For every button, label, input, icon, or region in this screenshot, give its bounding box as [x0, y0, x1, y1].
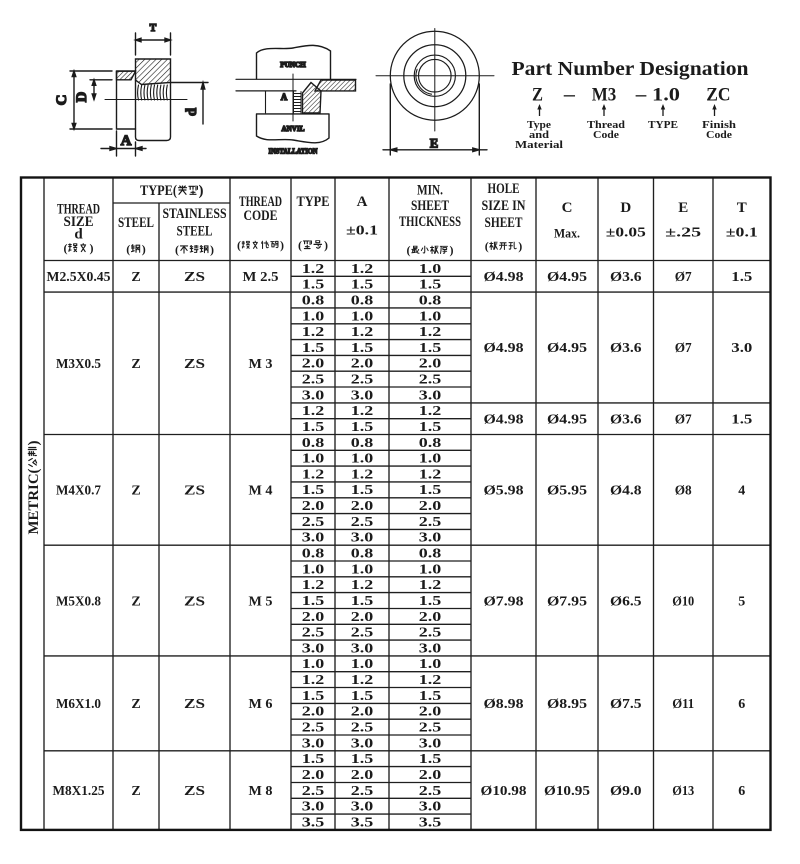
svg-text:2.0: 2.0 [302, 609, 325, 624]
svg-text:6: 6 [738, 784, 745, 799]
svg-text:1.5: 1.5 [419, 688, 442, 703]
svg-text:(: ( [237, 238, 241, 252]
svg-text:2.5: 2.5 [302, 783, 325, 798]
svg-text:A: A [357, 194, 368, 210]
svg-text:1.0: 1.0 [351, 561, 374, 576]
svg-text:ANVIL: ANVIL [282, 125, 305, 133]
svg-text:Ø4.98: Ø4.98 [484, 270, 524, 285]
svg-text:0.8: 0.8 [351, 546, 374, 561]
svg-text:Ø7.98: Ø7.98 [484, 594, 524, 609]
svg-text:1.5: 1.5 [302, 751, 325, 766]
svg-text:D: D [620, 200, 631, 216]
svg-text:METRIC(: METRIC( [26, 469, 42, 535]
svg-text:Ø8: Ø8 [675, 484, 692, 499]
svg-text:1.5: 1.5 [419, 482, 442, 497]
svg-text:ZC: ZC [706, 85, 730, 106]
svg-text:3.0: 3.0 [302, 640, 325, 655]
svg-text:3.0: 3.0 [419, 799, 442, 814]
svg-text:Z: Z [131, 270, 140, 285]
svg-text:Ø10.95: Ø10.95 [544, 784, 590, 799]
svg-text:2.5: 2.5 [302, 372, 325, 387]
svg-text:±.25: ±.25 [665, 225, 701, 240]
svg-text:1.5: 1.5 [351, 688, 374, 703]
svg-text:1.5: 1.5 [419, 593, 442, 608]
svg-text:1.2: 1.2 [351, 324, 374, 339]
svg-text:2.5: 2.5 [351, 514, 374, 529]
svg-text:Ø4.95: Ø4.95 [547, 412, 587, 427]
svg-text:SHEET: SHEET [485, 215, 523, 231]
svg-text:SIZE IN: SIZE IN [482, 198, 526, 214]
svg-text:2.0: 2.0 [302, 767, 325, 782]
svg-text:1.2: 1.2 [351, 466, 374, 481]
svg-text:1.5: 1.5 [302, 482, 325, 497]
svg-text:Z: Z [131, 697, 140, 712]
svg-text:1.5: 1.5 [351, 482, 374, 497]
svg-text:TYPE: TYPE [648, 120, 678, 131]
svg-text:2.0: 2.0 [419, 498, 442, 513]
svg-text:3.5: 3.5 [419, 814, 442, 829]
svg-text:TYPE(: TYPE( [140, 183, 177, 199]
svg-text:d: d [184, 108, 200, 116]
svg-text:0.8: 0.8 [419, 435, 442, 450]
svg-text:1.2: 1.2 [302, 466, 325, 481]
svg-text:Ø10: Ø10 [672, 594, 694, 609]
svg-text:1.5: 1.5 [302, 340, 325, 355]
svg-text:1.2: 1.2 [302, 403, 325, 418]
svg-text:2.5: 2.5 [351, 783, 374, 798]
svg-text:3.0: 3.0 [302, 387, 325, 402]
svg-text:0.8: 0.8 [351, 435, 374, 450]
svg-text:ZS: ZS [184, 357, 205, 372]
svg-text:1.5: 1.5 [419, 277, 442, 292]
svg-text:M3: M3 [592, 85, 617, 106]
svg-text:Ø4.8: Ø4.8 [610, 484, 642, 499]
svg-text:Ø4.95: Ø4.95 [547, 341, 587, 356]
svg-text:(: ( [298, 238, 302, 252]
svg-text:0.8: 0.8 [302, 435, 325, 450]
svg-text:5: 5 [738, 594, 745, 609]
svg-text:2.5: 2.5 [419, 625, 442, 640]
svg-text:ZS: ZS [184, 784, 205, 799]
svg-text:): ) [26, 441, 42, 446]
svg-text:M2.5X0.45: M2.5X0.45 [47, 270, 111, 285]
svg-text:0.8: 0.8 [419, 546, 442, 561]
svg-text:3.0: 3.0 [731, 341, 752, 356]
svg-text:1.0: 1.0 [302, 308, 325, 323]
svg-text:2.5: 2.5 [302, 514, 325, 529]
svg-text:0.8: 0.8 [302, 546, 325, 561]
svg-text:1.0: 1.0 [419, 308, 442, 323]
svg-text:±0.05: ±0.05 [606, 225, 646, 240]
svg-text:Ø7: Ø7 [675, 412, 692, 427]
svg-text:1.5: 1.5 [419, 751, 442, 766]
svg-text:(: ( [126, 242, 130, 256]
svg-text:): ) [450, 243, 454, 257]
svg-text:1.0: 1.0 [419, 261, 442, 276]
svg-text:3.0: 3.0 [419, 640, 442, 655]
svg-text:1.5: 1.5 [731, 412, 752, 427]
svg-text:3.5: 3.5 [302, 814, 325, 829]
svg-text:Z: Z [131, 484, 140, 499]
svg-text:2.5: 2.5 [302, 625, 325, 640]
svg-text:Max.: Max. [554, 226, 580, 241]
svg-text:1.2: 1.2 [351, 577, 374, 592]
svg-text:): ) [280, 238, 284, 252]
svg-text:2.0: 2.0 [419, 704, 442, 719]
svg-text:1.0: 1.0 [351, 656, 374, 671]
svg-text:2.5: 2.5 [419, 720, 442, 735]
svg-text:Z: Z [532, 85, 543, 106]
svg-text:3.0: 3.0 [419, 530, 442, 545]
svg-text:Ø8.98: Ø8.98 [484, 697, 524, 712]
svg-text:1.2: 1.2 [351, 672, 374, 687]
svg-text:1.5: 1.5 [351, 419, 374, 434]
svg-text:1.0: 1.0 [351, 308, 374, 323]
svg-text:2.5: 2.5 [419, 783, 442, 798]
svg-text:D: D [74, 92, 90, 102]
svg-text:PUNCH: PUNCH [280, 61, 306, 69]
svg-text:1.2: 1.2 [419, 466, 442, 481]
svg-text:INSTALLATION: INSTALLATION [269, 147, 319, 156]
svg-text:1.5: 1.5 [302, 277, 325, 292]
svg-text:E: E [430, 137, 438, 151]
svg-text:C: C [562, 200, 573, 216]
svg-text:2.5: 2.5 [419, 514, 442, 529]
svg-text:2.0: 2.0 [351, 767, 374, 782]
svg-text:2.5: 2.5 [351, 372, 374, 387]
svg-text:1.0: 1.0 [419, 451, 442, 466]
svg-text:ZS: ZS [184, 594, 205, 609]
svg-text:–: – [635, 85, 647, 106]
svg-text:2.0: 2.0 [302, 356, 325, 371]
svg-text:1.5: 1.5 [419, 419, 442, 434]
svg-text:): ) [210, 243, 214, 257]
svg-text:1.0: 1.0 [419, 656, 442, 671]
svg-text:M8X1.25: M8X1.25 [53, 784, 105, 799]
svg-text:Ø9.0: Ø9.0 [610, 784, 642, 799]
svg-text:Z: Z [131, 357, 140, 372]
svg-text:3.0: 3.0 [351, 530, 374, 545]
svg-text:(: ( [485, 239, 489, 253]
svg-text:STEEL: STEEL [118, 215, 154, 231]
svg-text:2.5: 2.5 [419, 372, 442, 387]
svg-text:Ø6.5: Ø6.5 [610, 594, 642, 609]
svg-text:1.5: 1.5 [351, 751, 374, 766]
svg-text:CODE: CODE [244, 208, 278, 224]
svg-text:1.0: 1.0 [351, 451, 374, 466]
svg-text:ZS: ZS [184, 697, 205, 712]
svg-text:4: 4 [738, 484, 745, 499]
svg-text:1.2: 1.2 [302, 324, 325, 339]
svg-text:MIN.: MIN. [417, 183, 443, 199]
svg-text:3.0: 3.0 [351, 387, 374, 402]
svg-text:HOLE: HOLE [488, 181, 520, 197]
svg-text:C: C [54, 95, 70, 106]
svg-text:M6X1.0: M6X1.0 [56, 697, 101, 712]
svg-text:(: ( [64, 241, 68, 255]
svg-text:SHEET: SHEET [411, 198, 449, 214]
svg-text:1.0: 1.0 [302, 656, 325, 671]
svg-text:1.5: 1.5 [419, 340, 442, 355]
svg-text:Ø5.95: Ø5.95 [547, 484, 587, 499]
svg-text:Ø7: Ø7 [675, 270, 692, 285]
svg-text:1.5: 1.5 [302, 419, 325, 434]
svg-text:Ø7: Ø7 [675, 341, 692, 356]
svg-text:2.0: 2.0 [302, 704, 325, 719]
svg-text:M 4: M 4 [249, 484, 273, 499]
svg-text:Ø3.6: Ø3.6 [610, 412, 642, 427]
svg-text:3.0: 3.0 [351, 735, 374, 750]
svg-text:1.2: 1.2 [419, 324, 442, 339]
svg-text:Ø7.5: Ø7.5 [610, 697, 642, 712]
svg-text:): ) [324, 238, 328, 252]
svg-text:1.5: 1.5 [351, 340, 374, 355]
svg-text:2.0: 2.0 [419, 609, 442, 624]
svg-text:M 2.5: M 2.5 [243, 270, 279, 285]
svg-text:Ø5.98: Ø5.98 [484, 484, 524, 499]
svg-text:STAINLESS: STAINLESS [163, 206, 227, 222]
svg-text:±0.1: ±0.1 [346, 223, 378, 238]
svg-text:1.2: 1.2 [419, 403, 442, 418]
svg-text:Material: Material [515, 140, 563, 151]
svg-text:1.0: 1.0 [302, 561, 325, 576]
svg-text:1.2: 1.2 [351, 403, 374, 418]
svg-text:2.0: 2.0 [419, 767, 442, 782]
svg-text:Code: Code [593, 130, 619, 141]
svg-text:0.8: 0.8 [419, 292, 442, 307]
svg-text:1.5: 1.5 [302, 593, 325, 608]
svg-text:1.2: 1.2 [302, 672, 325, 687]
svg-text:1.5: 1.5 [302, 688, 325, 703]
svg-text:2.0: 2.0 [351, 498, 374, 513]
svg-text:M 5: M 5 [249, 594, 273, 609]
svg-text:1.5: 1.5 [351, 277, 374, 292]
svg-text:3.0: 3.0 [302, 530, 325, 545]
svg-text:Ø4.98: Ø4.98 [484, 341, 524, 356]
svg-text:M 6: M 6 [249, 697, 273, 712]
svg-text:2.5: 2.5 [302, 720, 325, 735]
svg-text:): ) [90, 241, 94, 255]
svg-text:Ø8.95: Ø8.95 [547, 697, 587, 712]
svg-text:1.2: 1.2 [419, 672, 442, 687]
svg-text:1.5: 1.5 [351, 593, 374, 608]
svg-text:±0.1: ±0.1 [726, 225, 758, 240]
svg-text:Ø4.98: Ø4.98 [484, 412, 524, 427]
svg-text:2.0: 2.0 [419, 356, 442, 371]
svg-text:M 3: M 3 [249, 357, 273, 372]
svg-text:M4X0.7: M4X0.7 [56, 484, 101, 499]
svg-text:3.0: 3.0 [419, 387, 442, 402]
svg-text:Ø10.98: Ø10.98 [481, 784, 527, 799]
svg-text:1.2: 1.2 [302, 577, 325, 592]
svg-text:Ø11: Ø11 [672, 697, 694, 712]
svg-text:2.5: 2.5 [351, 625, 374, 640]
svg-text:(: ( [175, 243, 179, 257]
svg-text:1.0: 1.0 [419, 561, 442, 576]
svg-text:Ø3.6: Ø3.6 [610, 341, 642, 356]
svg-text:d: d [74, 227, 83, 243]
svg-text:2.0: 2.0 [351, 609, 374, 624]
svg-text:T: T [150, 23, 157, 34]
svg-text:0.8: 0.8 [351, 292, 374, 307]
svg-text:E: E [678, 200, 688, 216]
svg-text:1.2: 1.2 [419, 577, 442, 592]
svg-text:Ø4.95: Ø4.95 [547, 270, 587, 285]
svg-text:Z: Z [131, 594, 140, 609]
svg-text:2.0: 2.0 [302, 498, 325, 513]
svg-text:Ø3.6: Ø3.6 [610, 270, 642, 285]
svg-text:1.2: 1.2 [351, 261, 374, 276]
svg-text:): ) [142, 242, 146, 256]
svg-text:): ) [518, 239, 522, 253]
svg-text:–: – [563, 85, 576, 106]
svg-text:1.2: 1.2 [302, 261, 325, 276]
svg-text:ZS: ZS [184, 270, 205, 285]
svg-text:): ) [199, 183, 204, 199]
svg-text:M 8: M 8 [249, 784, 273, 799]
svg-text:THICKNESS: THICKNESS [399, 214, 461, 230]
svg-text:3.5: 3.5 [351, 814, 374, 829]
svg-text:M5X0.8: M5X0.8 [56, 594, 101, 609]
svg-text:A: A [121, 133, 132, 149]
svg-text:Ø7.95: Ø7.95 [547, 594, 587, 609]
svg-text:3.0: 3.0 [302, 735, 325, 750]
svg-text:0.8: 0.8 [302, 292, 325, 307]
svg-text:2.0: 2.0 [351, 356, 374, 371]
svg-text:Code: Code [706, 130, 732, 141]
svg-text:ZS: ZS [184, 484, 205, 499]
svg-text:1.5: 1.5 [731, 270, 752, 285]
svg-text:Part Number Designation: Part Number Designation [512, 58, 749, 80]
svg-text:1.0: 1.0 [302, 451, 325, 466]
svg-text:3.0: 3.0 [351, 640, 374, 655]
svg-text:1.0: 1.0 [652, 85, 680, 106]
svg-text:2.0: 2.0 [351, 704, 374, 719]
svg-text:(: ( [407, 243, 411, 257]
svg-text:6: 6 [738, 697, 745, 712]
svg-text:3.0: 3.0 [351, 799, 374, 814]
svg-text:Ø13: Ø13 [672, 784, 694, 799]
svg-text:A: A [281, 92, 288, 102]
svg-text:T: T [737, 200, 747, 216]
svg-text:Z: Z [131, 784, 140, 799]
svg-text:3.0: 3.0 [302, 799, 325, 814]
svg-text:2.5: 2.5 [351, 720, 374, 735]
svg-text:M3X0.5: M3X0.5 [56, 357, 101, 372]
svg-text:3.0: 3.0 [419, 735, 442, 750]
svg-text:STEEL: STEEL [177, 224, 213, 240]
svg-text:TYPE: TYPE [297, 194, 330, 210]
